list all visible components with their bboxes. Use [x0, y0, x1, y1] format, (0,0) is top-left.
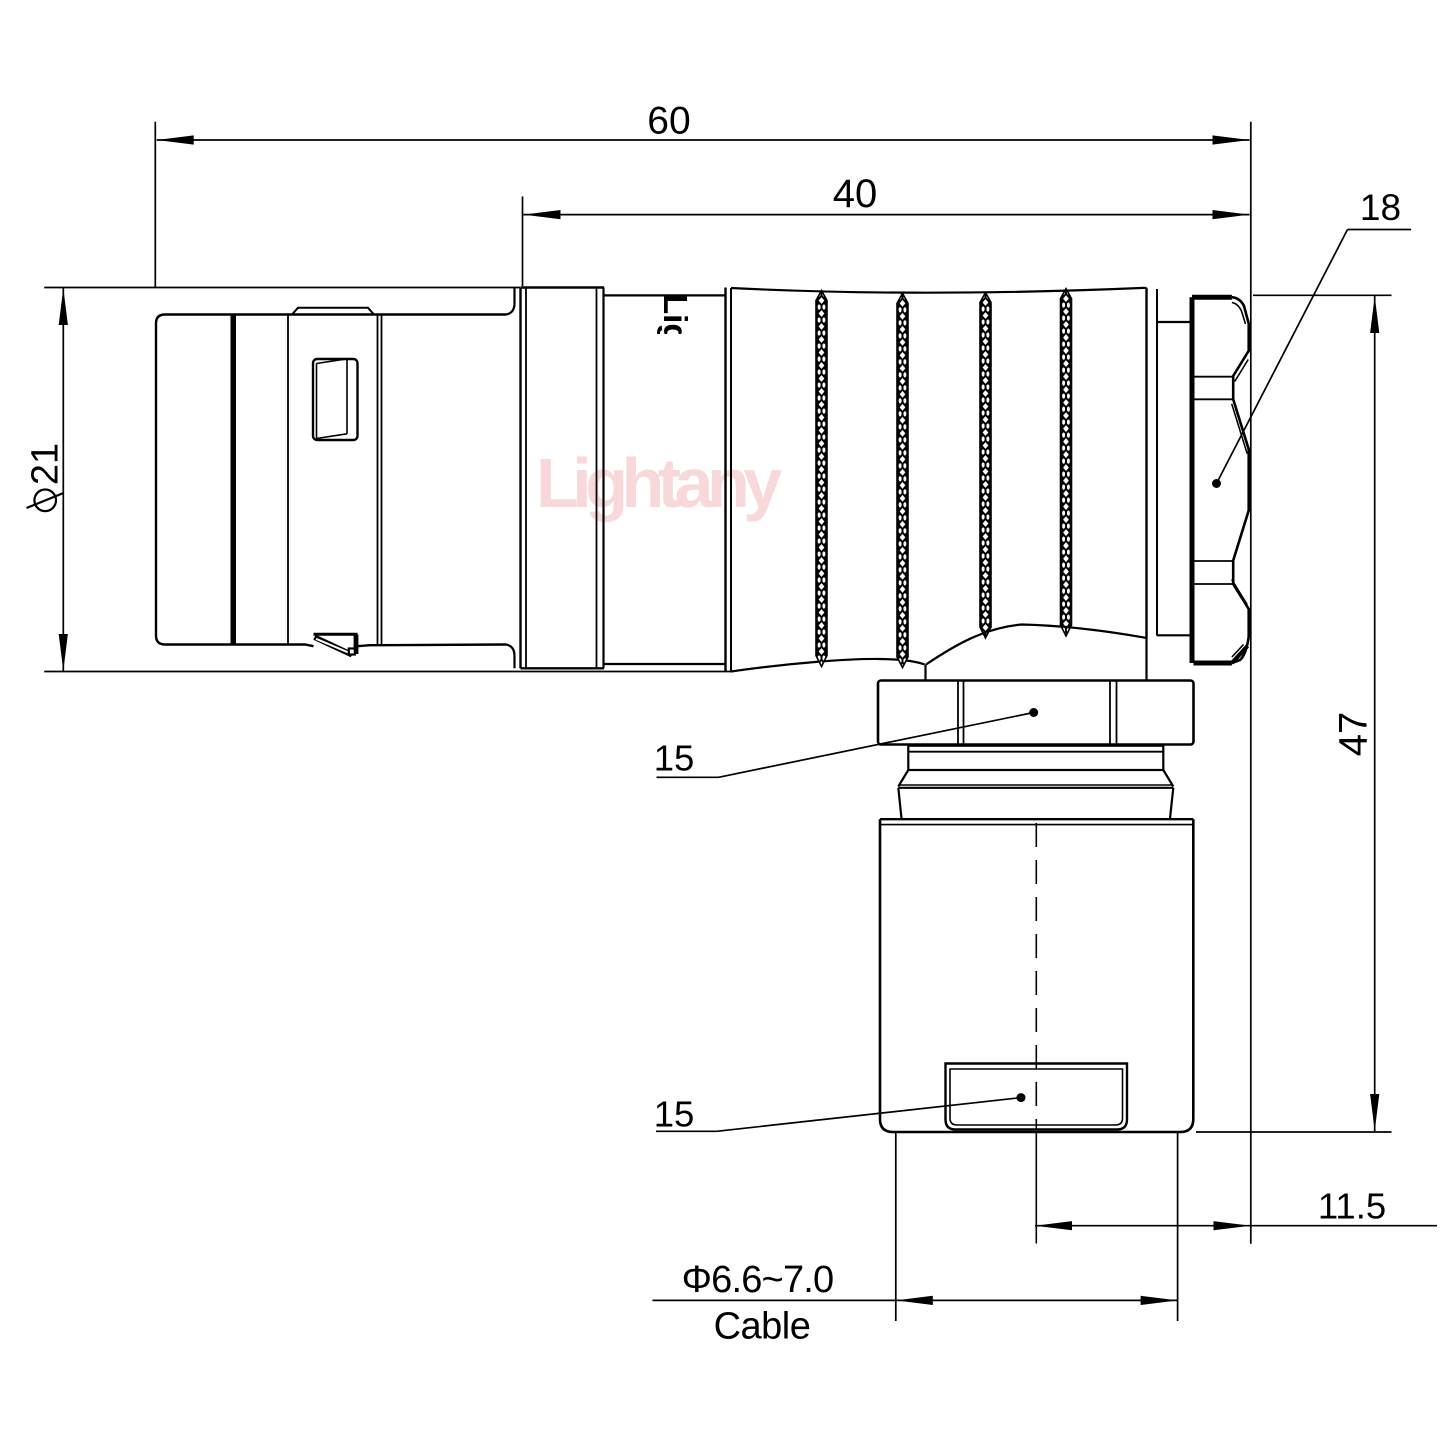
svg-text:47: 47 — [1332, 712, 1376, 757]
svg-text:60: 60 — [647, 99, 690, 142]
svg-text:21: 21 — [25, 443, 67, 485]
svg-text:11.5: 11.5 — [1318, 1186, 1386, 1227]
svg-text:Φ6.6~7.0: Φ6.6~7.0 — [682, 1259, 834, 1301]
svg-text:18: 18 — [1360, 187, 1401, 228]
svg-text:15: 15 — [654, 738, 695, 779]
svg-text:15: 15 — [654, 1094, 695, 1135]
svg-text:Lightany: Lightany — [536, 444, 782, 522]
svg-text:40: 40 — [833, 172, 878, 216]
svg-text:Cable: Cable — [714, 1305, 811, 1347]
svg-text:Lightany: Lightany — [657, 294, 694, 432]
